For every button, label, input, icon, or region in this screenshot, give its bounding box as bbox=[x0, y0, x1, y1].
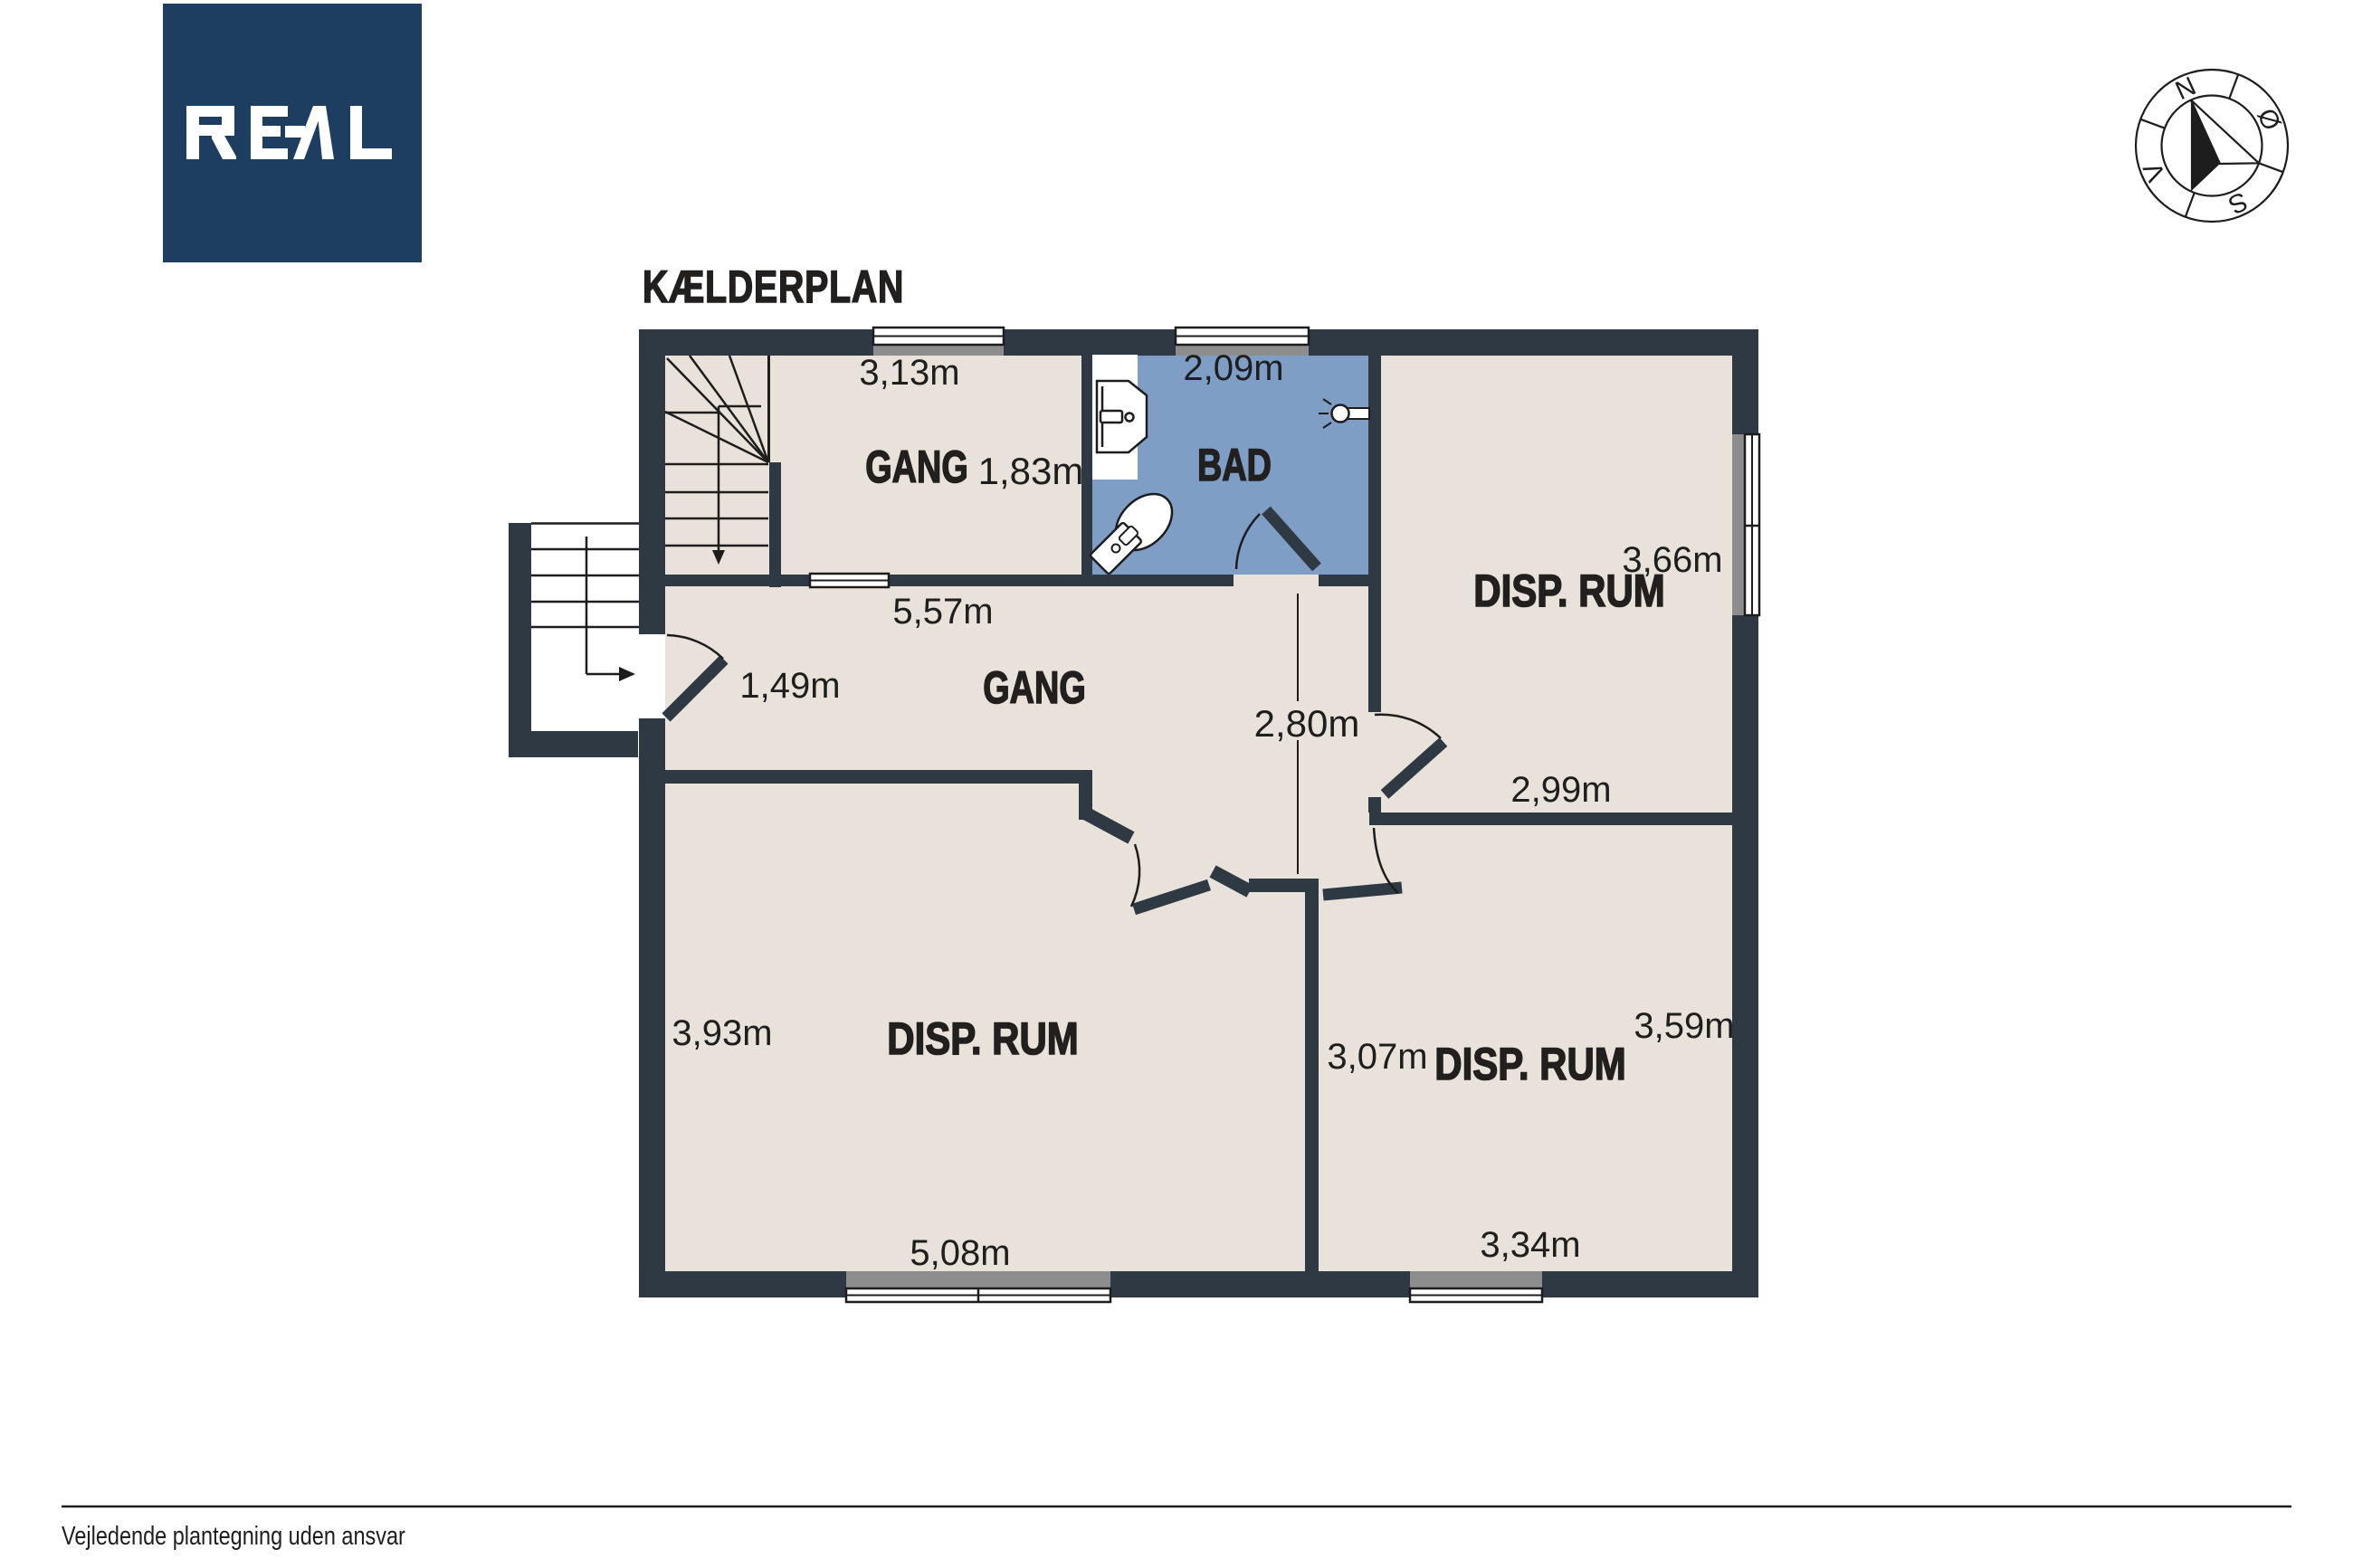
svg-text:2,80m: 2,80m bbox=[1254, 702, 1360, 745]
svg-text:KÆLDERPLAN: KÆLDERPLAN bbox=[643, 261, 904, 312]
svg-text:Vejledende plantegning uden an: Vejledende plantegning uden ansvar bbox=[62, 1521, 405, 1551]
svg-text:3,34m: 3,34m bbox=[1480, 1225, 1580, 1265]
svg-text:3,13m: 3,13m bbox=[859, 353, 959, 393]
svg-text:3,07m: 3,07m bbox=[1327, 1037, 1427, 1077]
svg-text:1,83m: 1,83m bbox=[978, 450, 1084, 492]
svg-text:3,93m: 3,93m bbox=[672, 1013, 772, 1053]
svg-text:1,49m: 1,49m bbox=[739, 666, 840, 706]
svg-text:5,08m: 5,08m bbox=[910, 1233, 1010, 1273]
svg-text:GANG: GANG bbox=[865, 442, 968, 492]
svg-text:DISP. RUM: DISP. RUM bbox=[1473, 565, 1665, 616]
svg-text:BAD: BAD bbox=[1197, 441, 1272, 490]
svg-text:DISP. RUM: DISP. RUM bbox=[1434, 1039, 1626, 1089]
svg-text:2,09m: 2,09m bbox=[1183, 348, 1283, 388]
svg-text:3,59m: 3,59m bbox=[1634, 1006, 1734, 1046]
svg-text:5,57m: 5,57m bbox=[892, 592, 993, 632]
svg-text:DISP. RUM: DISP. RUM bbox=[887, 1013, 1079, 1064]
svg-text:2,99m: 2,99m bbox=[1510, 770, 1611, 810]
svg-text:GANG: GANG bbox=[983, 663, 1086, 713]
